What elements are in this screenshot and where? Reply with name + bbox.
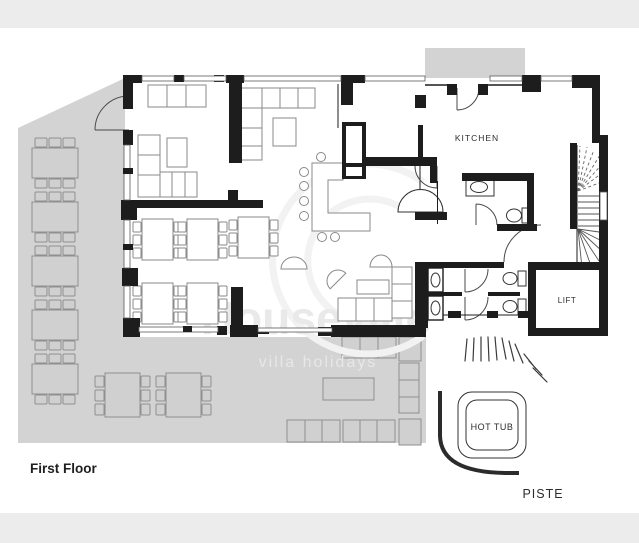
hot-tub-label: HOT TUB bbox=[471, 422, 514, 432]
bar-stool bbox=[300, 197, 309, 206]
floor-plan-drawing: Houseville villa holidays bbox=[0, 0, 639, 543]
bar-stool bbox=[300, 182, 309, 191]
bar-stool bbox=[317, 153, 326, 162]
terrace-table bbox=[32, 354, 78, 404]
lift-label: LIFT bbox=[558, 296, 576, 305]
terrace-coffee-table bbox=[323, 378, 374, 400]
terrace-table bbox=[156, 373, 211, 417]
dining-table bbox=[229, 217, 278, 258]
watermark-tagline: villa holidays bbox=[259, 354, 378, 371]
terrace-table bbox=[32, 300, 78, 350]
bar-stool bbox=[331, 233, 340, 242]
coffee-table bbox=[357, 280, 389, 294]
terrace-table bbox=[32, 138, 78, 188]
bar-stool bbox=[318, 233, 327, 242]
terrace-table bbox=[32, 192, 78, 242]
kitchen-label: KITCHEN bbox=[455, 133, 499, 143]
dining-table bbox=[133, 219, 182, 260]
terrace-table bbox=[32, 246, 78, 296]
dining-table bbox=[178, 283, 227, 324]
bottom-band bbox=[0, 513, 639, 543]
top-band bbox=[0, 0, 639, 28]
terrace-table bbox=[95, 373, 150, 417]
dining-table bbox=[178, 219, 227, 260]
dining-table bbox=[133, 283, 182, 324]
toilet-fixture bbox=[518, 271, 526, 286]
armchair bbox=[167, 138, 187, 167]
hot-tub: HOT TUB bbox=[458, 392, 526, 458]
floor-title: First Floor bbox=[30, 461, 97, 476]
side-table bbox=[273, 118, 296, 146]
floor-plan-page: Houseville villa holidays bbox=[0, 0, 639, 543]
bar-stool bbox=[300, 212, 309, 221]
bar-stool bbox=[300, 168, 309, 177]
piste-label: PISTE bbox=[522, 487, 563, 501]
